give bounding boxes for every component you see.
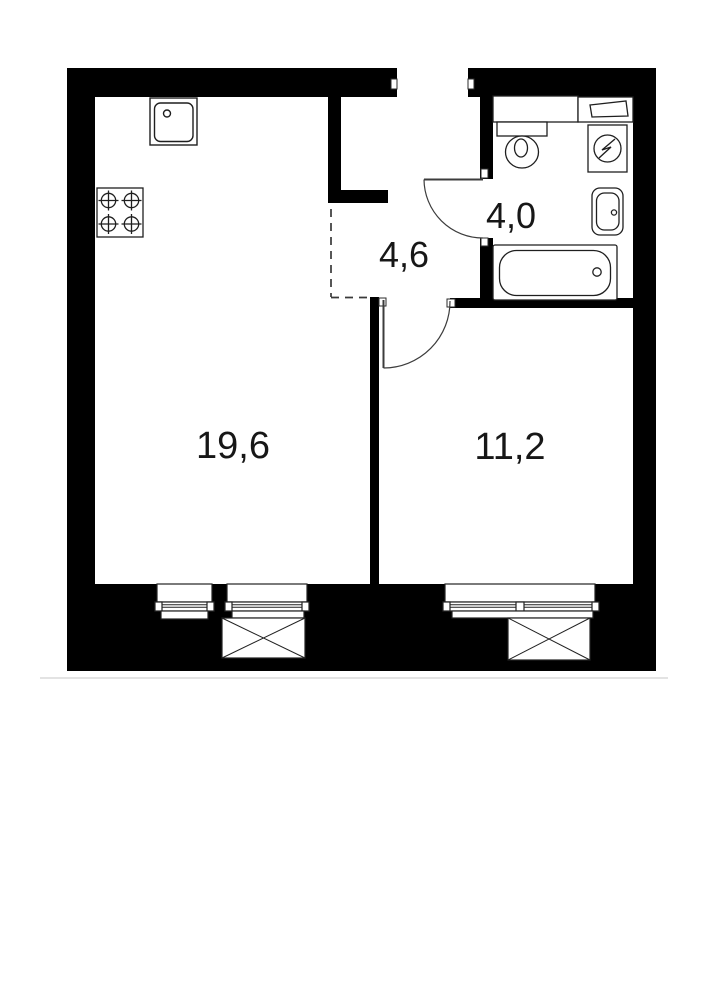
wall-bathroom-left-upper (480, 97, 493, 179)
wall-left (67, 68, 95, 671)
floor-plan-page: 19,6 11,2 4,6 4,0 (0, 0, 707, 1000)
window-icon (155, 584, 214, 619)
bathroom-vanity-icon (493, 96, 578, 122)
room-label-bathroom: 4,0 (486, 198, 536, 234)
wall-bathroom-left-lower (480, 238, 493, 300)
window-icon (225, 584, 309, 618)
jamb-bathroom-bottom (481, 238, 488, 246)
dashed-zone-boundary (331, 209, 370, 298)
kitchen-sink-icon (150, 98, 197, 145)
wall-top-right (468, 68, 656, 97)
walls (67, 68, 656, 671)
jamb-entrance-right (468, 79, 474, 89)
washing-machine-icon (588, 125, 627, 172)
toilet-icon (497, 122, 547, 168)
room-label-bedroom: 11,2 (474, 428, 545, 466)
wall-hall-stub-vertical (328, 97, 341, 191)
wall-right (633, 68, 656, 671)
floor-plan-drawing (0, 0, 707, 1000)
wall-partition-vertical (370, 297, 379, 584)
room-label-hallway: 4,6 (379, 237, 429, 273)
bathroom-sink-icon (592, 188, 623, 235)
boiler-shelf-icon (578, 97, 633, 122)
bathroom-door-swing-icon (424, 180, 483, 239)
wall-hall-stub-horizontal (328, 190, 388, 203)
window-icon (443, 584, 599, 618)
shaft-box-icon (508, 618, 590, 660)
stove-4-burner-icon (97, 188, 143, 237)
bathtub-icon (493, 245, 617, 300)
room-label-living-kitchen: 19,6 (196, 427, 270, 465)
bedroom-door-swing-icon (384, 300, 451, 368)
wall-top-left (67, 68, 397, 97)
jamb-bedroom-right (447, 299, 455, 307)
shaft-box-icon (222, 618, 305, 658)
jamb-entrance-left (391, 79, 397, 89)
jamb-bathroom-top (481, 169, 488, 178)
